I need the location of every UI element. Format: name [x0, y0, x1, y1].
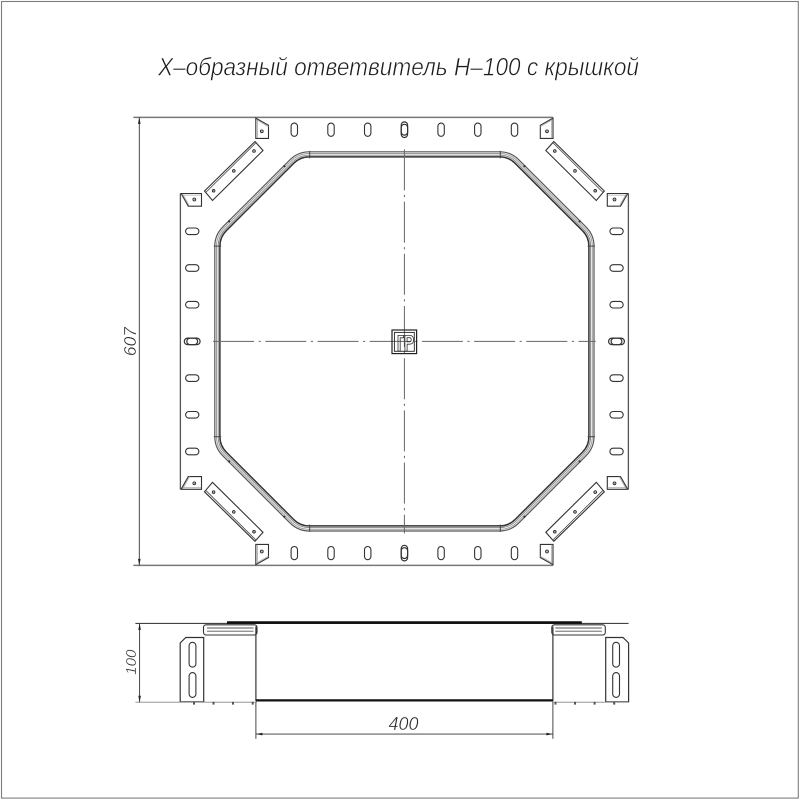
- svg-text:Х–образный ответвитель Н–100 с: Х–образный ответвитель Н–100 с крышкой: [157, 53, 639, 81]
- svg-text:400: 400: [388, 714, 418, 734]
- svg-text:607: 607: [120, 326, 140, 356]
- svg-text:100: 100: [123, 649, 140, 675]
